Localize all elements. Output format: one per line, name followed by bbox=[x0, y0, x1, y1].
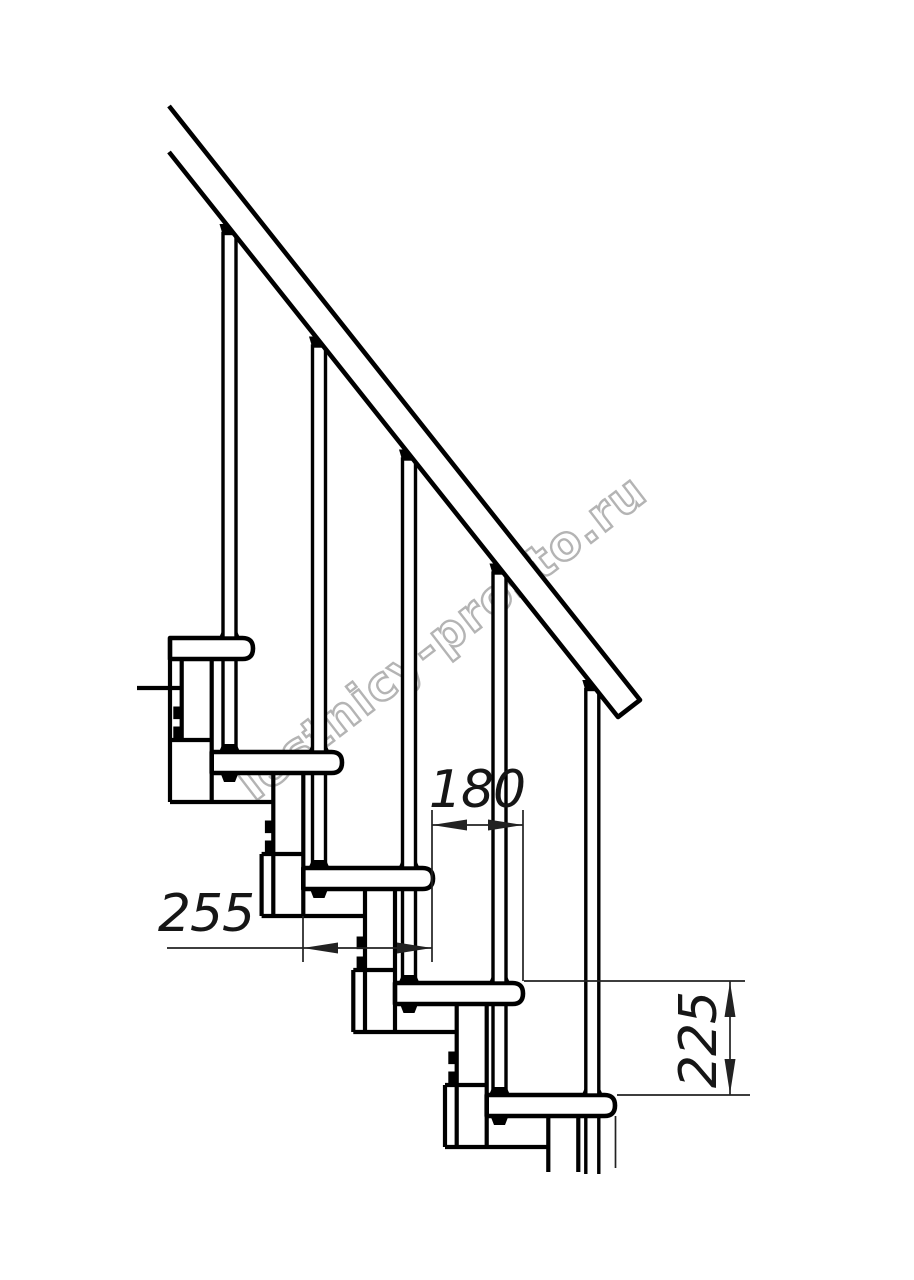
dimension-225-label: 225 bbox=[669, 992, 729, 1088]
staircase-drawing-page: lestnicy-prosto.ru bbox=[0, 0, 914, 1280]
dimension-255-label: 255 bbox=[158, 884, 254, 944]
baluster-1 bbox=[223, 234, 236, 639]
dimension-annotations: 180 255 225 bbox=[158, 760, 750, 1095]
tread-1 bbox=[170, 638, 253, 659]
dimension-255: 255 bbox=[158, 884, 432, 962]
support-module-5 bbox=[548, 1116, 578, 1172]
tread-4 bbox=[395, 983, 523, 1004]
staircase-technical-drawing: lestnicy-prosto.ru bbox=[0, 0, 914, 1280]
dimension-180-label: 180 bbox=[429, 760, 525, 820]
baluster-3 bbox=[403, 459, 416, 868]
bolt-rod-1 bbox=[223, 659, 236, 752]
bolt-rod-5 bbox=[586, 1116, 599, 1174]
baluster-5 bbox=[586, 690, 599, 1096]
tread-3 bbox=[303, 868, 433, 889]
dimension-180: 180 bbox=[429, 760, 525, 981]
bolt-rod-3 bbox=[403, 889, 416, 983]
tread-5 bbox=[487, 1095, 615, 1116]
tread-2 bbox=[212, 752, 342, 773]
dimension-225: 225 bbox=[524, 981, 750, 1095]
baluster-2 bbox=[313, 346, 326, 752]
bolt-rod-2 bbox=[313, 773, 326, 868]
bolt-rod-4 bbox=[493, 1004, 506, 1095]
